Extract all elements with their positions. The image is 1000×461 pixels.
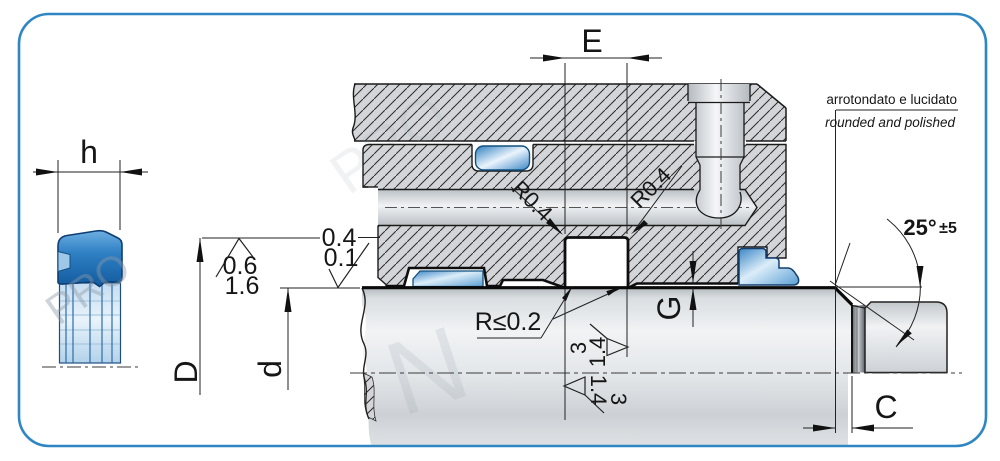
oring-seal	[476, 146, 530, 170]
rod-relief-groove	[852, 305, 865, 373]
finish-rod-value-2: 0.1	[324, 244, 359, 272]
h-label: h	[80, 134, 98, 170]
seal-profile-view: PRO h	[33, 134, 148, 367]
dim-label-e: E	[581, 23, 602, 59]
dim-label-d-outer: D	[168, 360, 204, 383]
radius-label-bottom: R≤0.2	[475, 308, 542, 336]
h-arrow-right	[120, 169, 142, 176]
dim-label-c: C	[874, 389, 897, 425]
finish-wall-left-2: 3	[606, 393, 631, 405]
h-arrow-left	[36, 169, 58, 176]
finish-wall-right-2: 1.4	[585, 337, 610, 368]
seal-groove	[565, 238, 628, 289]
note-english: rounded and polished	[825, 115, 955, 130]
dim-label-d-inner: d	[252, 360, 288, 378]
angle-value: 25°	[903, 215, 936, 240]
finish-bore-value-2: 1.6	[225, 272, 260, 300]
seal-installation-drawing: PRO h N	[0, 0, 1000, 461]
angle-tolerance: ±5	[939, 220, 957, 237]
dim-label-g: G	[651, 296, 687, 321]
seal-static-notch	[58, 252, 70, 272]
drawing-canvas: PRO h N	[0, 0, 1000, 461]
secondary-seal	[413, 271, 483, 287]
drawing-area: PRO h N	[33, 23, 962, 447]
note-italian: arrotondato e lucidato	[826, 92, 957, 107]
